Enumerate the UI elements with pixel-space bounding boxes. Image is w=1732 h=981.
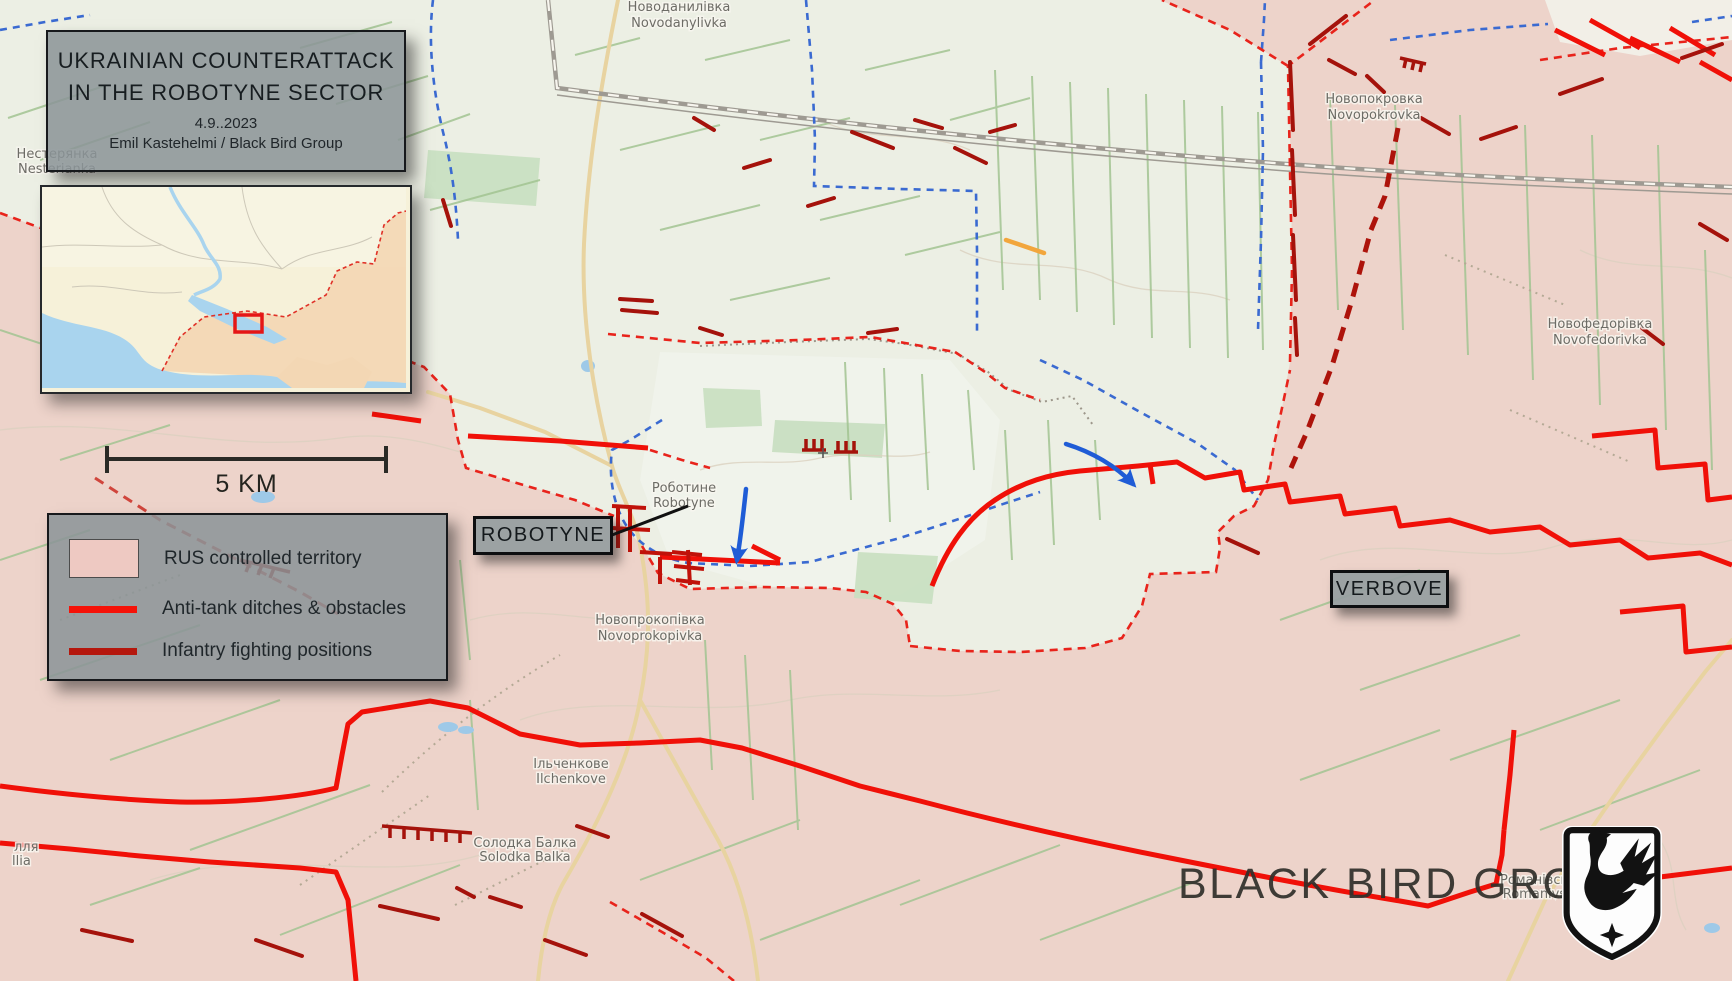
legend-label-rus-territory: RUS controlled territory [164, 548, 361, 570]
legend: RUS controlled territory Anti-tank ditch… [47, 513, 448, 681]
map-figure: Новоданилівка Novodanylivka Нестерянка N… [0, 0, 1732, 981]
anti-tank-swatch [69, 606, 137, 613]
robotyne-callout: ROBOTYNE [473, 516, 613, 555]
town-label-solodka-balka-en: Solodka Balka [479, 850, 570, 865]
legend-item-anti-tank: Anti-tank ditches & obstacles [69, 598, 406, 620]
verbove-callout: VERBOVE [1330, 570, 1449, 608]
town-label-novoprokopivka-uk: Новопрокопівка [595, 613, 704, 628]
robotyne-callout-label: ROBOTYNE [481, 524, 605, 547]
swan-shield-icon [1562, 826, 1662, 960]
scale-bar-tick-left [105, 446, 109, 473]
title-credit: Emil Kastehelmi / Black Bird Group [48, 135, 404, 152]
town-label-robotyne-uk: Роботине [652, 481, 716, 496]
scale-bar-line [105, 457, 388, 461]
title-line-2: IN THE ROBOTYNE SECTOR [48, 80, 404, 106]
infantry-swatch [69, 648, 137, 655]
town-label-novopokrovka-uk: Новопокровка [1325, 92, 1422, 107]
inset-map-canvas [42, 187, 406, 388]
town-label-novoprokopivka-en: Novoprokopivka [598, 629, 702, 644]
legend-item-rus-territory: RUS controlled territory [69, 539, 361, 578]
town-label-novodanylivka-en: Novodanylivka [631, 16, 727, 31]
town-label-edge-fragment-uk: лля [14, 840, 38, 855]
legend-label-infantry: Infantry fighting positions [162, 640, 372, 662]
legend-label-anti-tank: Anti-tank ditches & obstacles [162, 598, 406, 620]
scale-bar-tick-right [384, 446, 388, 473]
black-bird-group-logo [1562, 826, 1662, 960]
title-box: UKRAINIAN COUNTERATTACK IN THE ROBOTYNE … [46, 30, 406, 172]
town-label-novofedorivka-en: Novofedorivka [1553, 333, 1647, 348]
inset-map [40, 185, 412, 394]
town-label-ilchenkove-uk: Ільченкове [533, 757, 608, 772]
verbove-callout-label: VERBOVE [1336, 578, 1443, 601]
town-label-solodka-balka-uk: Солодка Балка [473, 836, 576, 851]
legend-item-infantry: Infantry fighting positions [69, 640, 372, 662]
title-line-1: UKRAINIAN COUNTERATTACK [48, 48, 404, 74]
scale-bar-label: 5 KM [105, 470, 388, 499]
town-label-ilchenkove-en: Ilchenkove [536, 772, 606, 787]
town-label-novodanylivka-uk: Новоданилівка [628, 0, 731, 15]
town-label-novofedorivka-uk: Новофедорівка [1548, 317, 1653, 332]
town-label-novopokrovka-en: Novopokrovka [1327, 108, 1420, 123]
rus-territory-swatch [69, 539, 139, 578]
town-label-edge-fragment-en: llia [12, 854, 31, 869]
title-date: 4.9..2023 [48, 115, 404, 132]
